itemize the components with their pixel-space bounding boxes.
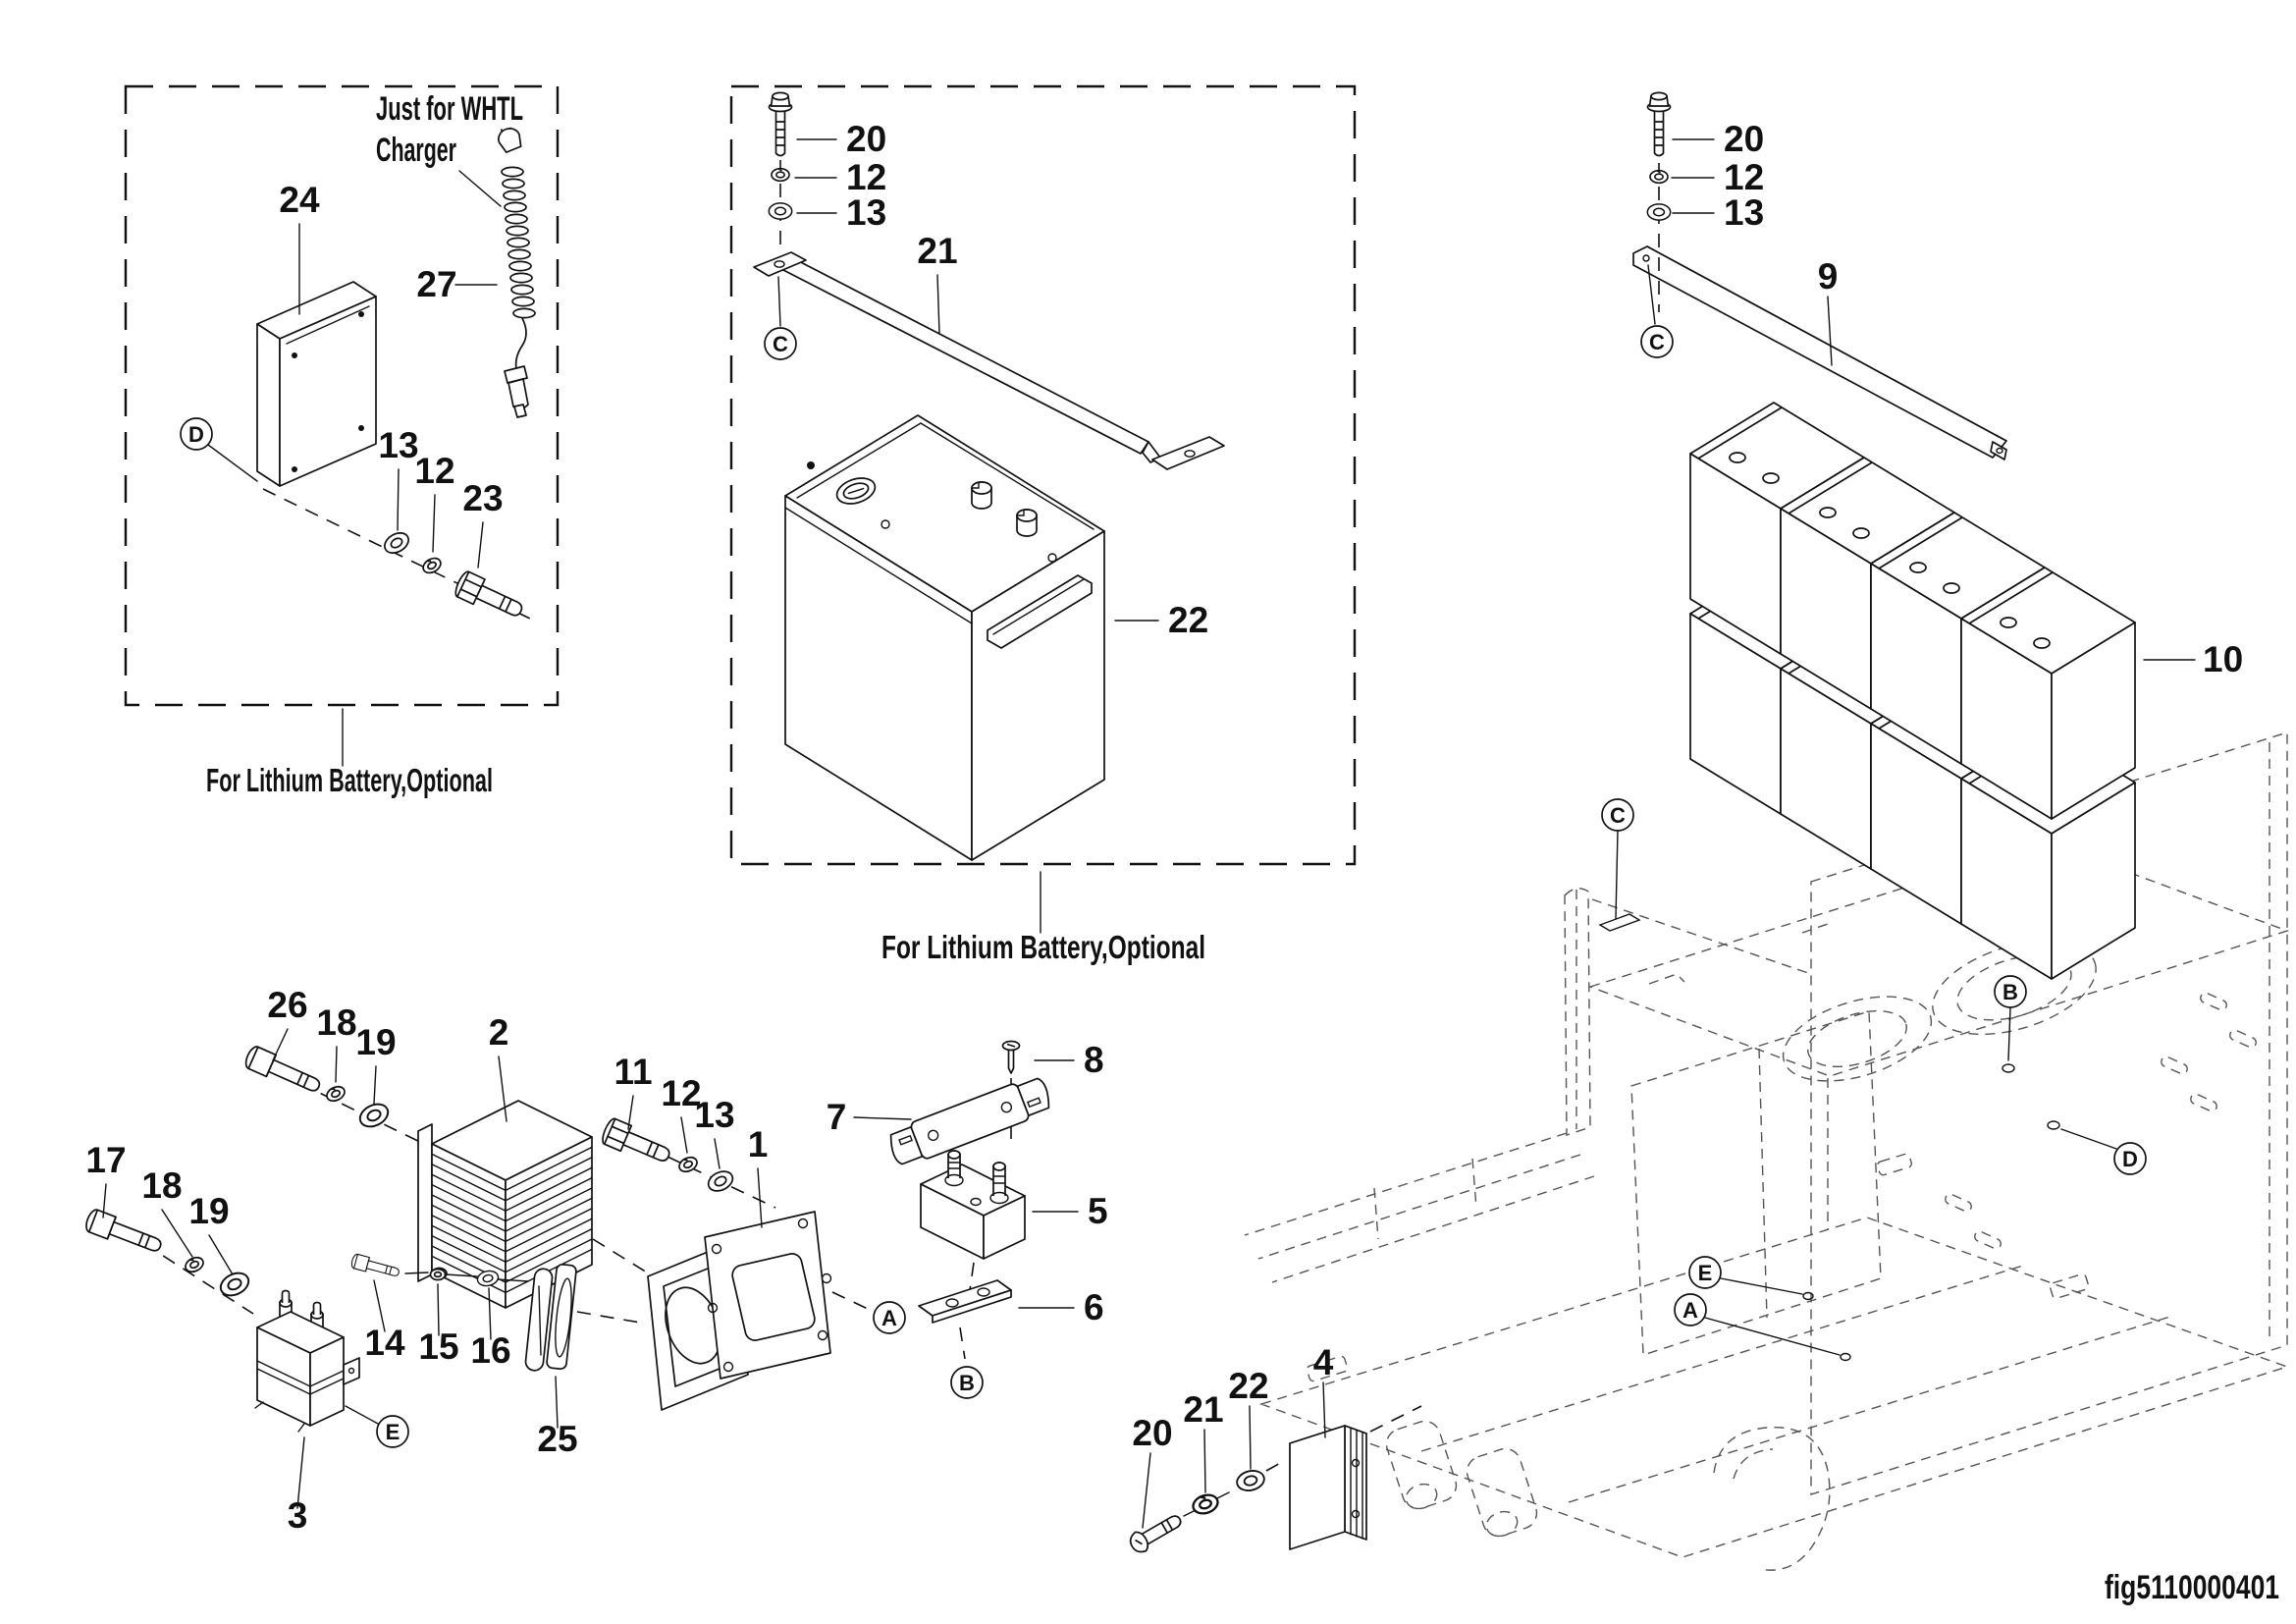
hole-b	[2002, 1064, 2014, 1072]
part-13-washer-mid	[769, 203, 791, 219]
svg-text:A: A	[881, 1306, 897, 1330]
label-20-right: 20	[1724, 119, 1764, 159]
label-13-b: 13	[694, 1095, 734, 1135]
label-18-b: 18	[141, 1165, 182, 1206]
svg-text:D: D	[188, 422, 204, 447]
label-12-whtl: 12	[414, 451, 454, 491]
label-8: 8	[1084, 1040, 1104, 1080]
callout-a-chassis: A	[1675, 1294, 1706, 1326]
label-2: 2	[489, 1012, 509, 1053]
fuse-group: 8 7 5 6 B	[827, 1040, 1108, 1398]
label-24: 24	[279, 180, 320, 220]
part-24-charger-box	[257, 282, 376, 486]
callout-a-bracket: A	[874, 1302, 905, 1333]
label-25: 25	[537, 1419, 577, 1459]
svg-text:C: C	[773, 332, 788, 356]
part-13-washer-whtl	[381, 529, 412, 558]
label-14: 14	[364, 1323, 405, 1363]
callout-d-chassis: D	[2114, 1143, 2146, 1174]
part-5-fuse-holder	[921, 1151, 1025, 1259]
part-21-strap	[754, 252, 1224, 469]
parts-diagram-page: C B D E A 10 9 20 12 13 C Just for WHTL …	[0, 0, 2296, 1624]
svg-text:B: B	[2002, 980, 2018, 1004]
svg-text:E: E	[386, 1420, 400, 1444]
label-21: 21	[917, 231, 957, 271]
part-21-washer-bottom	[1191, 1492, 1220, 1517]
note-whtl-line1: Just for WHTL	[376, 90, 523, 128]
figure-code: fig5110000401	[2105, 1569, 2279, 1606]
part-7-fuse	[885, 1073, 1054, 1169]
part-13-washer-b	[705, 1167, 735, 1195]
svg-text:C: C	[1649, 330, 1665, 354]
label-12-mid: 12	[846, 157, 886, 197]
label-19-a: 19	[355, 1022, 396, 1062]
label-6: 6	[1084, 1287, 1104, 1327]
callout-c-chassis: C	[1602, 799, 1633, 831]
callout-e-chassis: E	[1689, 1257, 1721, 1288]
label-18-a: 18	[316, 1002, 356, 1043]
label-13-whtl: 13	[378, 425, 418, 465]
part-26-bolt	[243, 1045, 324, 1098]
exploded-parts-diagram: C B D E A 10 9 20 12 13 C Just for WHTL …	[0, 0, 2296, 1624]
part-13-washer-right	[1647, 204, 1670, 220]
label-4: 4	[1313, 1342, 1334, 1382]
label-3: 3	[288, 1495, 308, 1536]
label-23: 23	[462, 478, 503, 518]
part-19-washer-b	[217, 1269, 252, 1300]
part-17-bolt	[83, 1208, 164, 1258]
label-9: 9	[1818, 256, 1839, 297]
part-20-bolt-mid	[770, 92, 792, 155]
callout-c-right: C	[1641, 326, 1673, 357]
callout-b-chassis: B	[1995, 976, 2026, 1007]
svg-text:C: C	[1610, 803, 1626, 828]
hole-d	[2048, 1121, 2059, 1129]
part-12-washer-whtl	[420, 556, 443, 576]
label-22: 22	[1168, 600, 1208, 640]
label-1: 1	[748, 1124, 769, 1164]
part-4-module	[1290, 1426, 1366, 1549]
part-15-nut	[431, 1269, 448, 1280]
label-20-mid: 20	[846, 119, 886, 159]
label-19-b: 19	[188, 1191, 229, 1231]
callout-d-whtl: D	[181, 418, 212, 450]
callout-b-fuse: B	[951, 1367, 983, 1398]
part-1-bracket	[648, 1212, 831, 1410]
label-26: 26	[267, 985, 307, 1025]
part-10-battery-stack	[1690, 403, 2135, 979]
caption-whtl-box: For Lithium Battery,Optional	[206, 762, 493, 798]
lithium-optional-box: 20 12 13 21 C 22 For Lithium Battery,Opt…	[731, 86, 1355, 965]
label-12-right: 12	[1724, 157, 1764, 197]
svg-text:B: B	[959, 1371, 975, 1395]
part-14-bolt	[350, 1253, 400, 1279]
part-11-bolt	[600, 1117, 673, 1169]
svg-text:A: A	[1682, 1298, 1698, 1323]
label-5: 5	[1088, 1191, 1108, 1231]
label-15: 15	[418, 1326, 458, 1367]
label-20-bottom: 20	[1132, 1413, 1172, 1453]
label-16: 16	[470, 1330, 510, 1371]
battery-bank-group: 10 9 20 12 13 C	[1633, 92, 2243, 979]
part-22-washer-bottom	[1235, 1468, 1266, 1493]
label-13-mid: 13	[846, 192, 886, 233]
part-12-washer-right	[1650, 171, 1668, 184]
label-7: 7	[827, 1097, 847, 1137]
caption-lithium-box: For Lithium Battery,Optional	[881, 929, 1205, 965]
label-13-right: 13	[1724, 192, 1764, 233]
hole-a	[1841, 1354, 1850, 1361]
part-8-screw	[1003, 1042, 1020, 1074]
callout-e-contactor: E	[377, 1416, 408, 1447]
part-12-washer-b	[677, 1155, 700, 1174]
part-20-bolt-right	[1648, 92, 1671, 155]
label-11: 11	[614, 1052, 652, 1092]
part-3-contactor	[255, 1291, 359, 1433]
label-27: 27	[416, 264, 456, 304]
label-10: 10	[2203, 639, 2243, 679]
note-whtl-line2: Charger	[376, 132, 456, 169]
label-21-bottom: 21	[1183, 1389, 1223, 1430]
label-22-bottom: 22	[1228, 1366, 1268, 1406]
label-17: 17	[85, 1140, 126, 1180]
part-27-coiled-cable	[495, 124, 535, 417]
part-23-bolt	[453, 569, 526, 623]
resistor-group: 20 21 22 4	[1127, 1342, 1421, 1556]
whtl-optional-box: Just for WHTL Charger 24 27	[126, 86, 558, 798]
part-6-plate	[919, 1280, 1011, 1323]
svg-text:D: D	[2122, 1147, 2138, 1171]
svg-text:E: E	[1698, 1261, 1713, 1285]
callout-c-mid: C	[765, 328, 796, 359]
part-22-battery	[785, 415, 1104, 860]
part-12-washer-mid	[772, 169, 789, 182]
part-20-screw-bottom	[1127, 1509, 1185, 1555]
part-18-washer-a	[325, 1084, 347, 1104]
